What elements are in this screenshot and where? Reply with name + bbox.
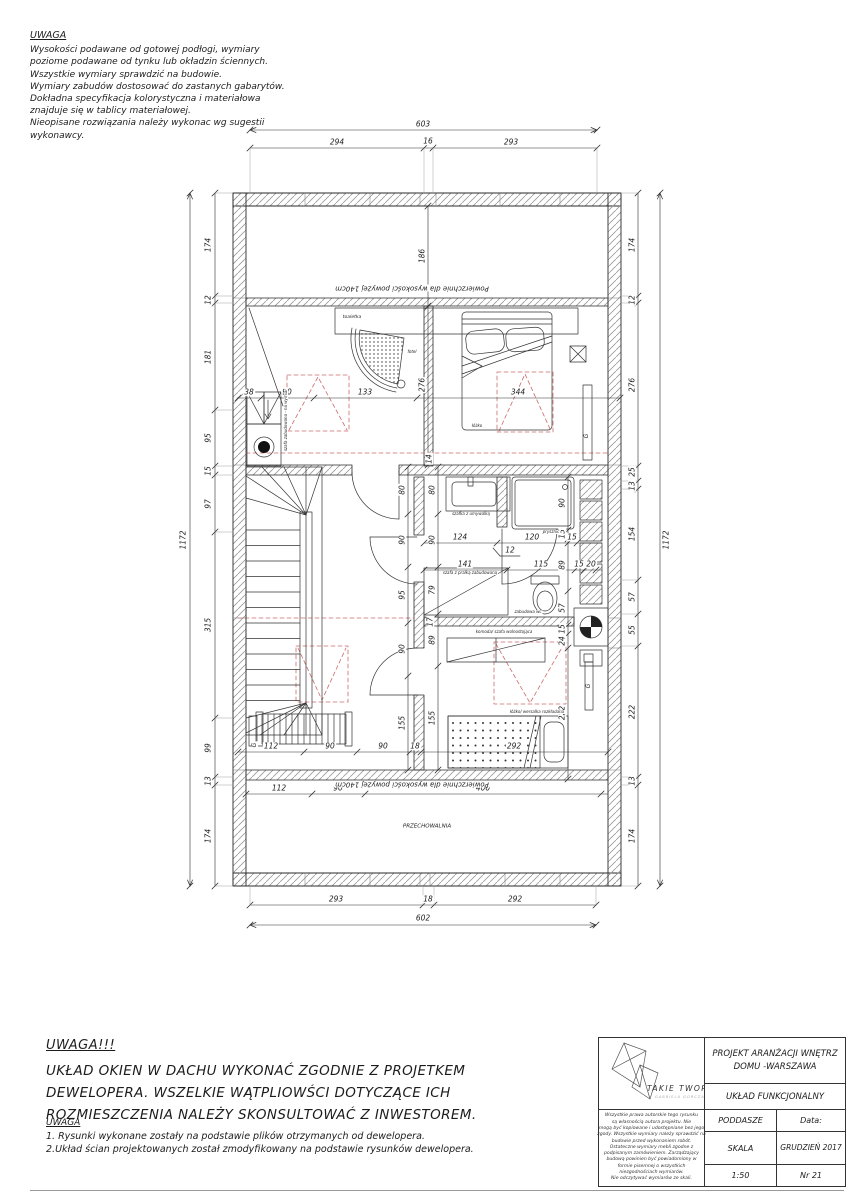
drawing-name: UKŁAD FUNKCJONALNY (705, 1083, 845, 1109)
title-block: TAKIE TWORY GABRIELA GORCZAK Wszystkie p… (598, 1037, 846, 1187)
note-line: Nie odczytywać wymiarów ze skali. (597, 1176, 705, 1182)
floor-plan-drawing (0, 0, 849, 1200)
developer-note-lines: 1. Rysunki wykonane zostały na podstawie… (46, 1130, 474, 1156)
note-line: poziome podawane od tynku lub okładzin ś… (30, 56, 285, 68)
developer-note: UWAGA 1. Rysunki wykonane zostały na pod… (46, 1118, 474, 1156)
radiator-bedroom (583, 385, 592, 460)
general-notes: UWAGA Wysokości podawane od gotowej podł… (30, 30, 285, 142)
disclaimer-lines: Wszystkie prawa autorskie tego rysunkusą… (597, 1113, 705, 1182)
copyright-disclaimer: Wszystkie prawa autorskie tego rysunkusą… (599, 1109, 705, 1186)
developer-note-title: UWAGA (46, 1118, 474, 1128)
note-line: Wszystkie wymiary sprawdzić na budowie. (30, 69, 285, 81)
scale-value: 1:50 (705, 1164, 776, 1186)
sheet-frame-line (30, 1190, 844, 1191)
note-line: UKŁAD OKIEN W DACHU WYKONAĆ ZGODNIE Z PR… (46, 1060, 477, 1082)
stage-value: PODDASZE (705, 1109, 776, 1131)
laundry-corner (247, 308, 283, 466)
note-line: budową powinien być powiadomiony w (597, 1157, 705, 1163)
roof-windows-note: UWAGA!!! UKŁAD OKIEN W DACHU WYKONAĆ ZGO… (46, 1038, 477, 1126)
notes-lines: Wysokości podawane od gotowej podłogi, w… (30, 44, 285, 142)
note-line: Wymiary zabudów dostosować do zastanych … (30, 81, 285, 93)
sofa-bed (448, 716, 568, 768)
note-line: wykonawcy. (30, 130, 285, 142)
outer-walls (233, 193, 621, 886)
built-in-shelves (580, 480, 602, 604)
bedroom-furniture (335, 308, 592, 460)
note-line: Dokładna specyfikacja kolorystyczna i ma… (30, 93, 285, 105)
project-title-line2: DOMU -WARSZAWA (712, 1061, 837, 1074)
note-line: 1. Rysunki wykonane zostały na podstawie… (46, 1130, 474, 1143)
brand-text: TAKIE TWORY (647, 1084, 704, 1093)
date-value: GRUDZIEŃ 2017 (776, 1131, 845, 1164)
note-line: zgody. Wszystkie wymiary należy sprawdzi… (597, 1132, 705, 1138)
wall-division-lines (233, 193, 621, 886)
note-line: znajduje się w tablicy materiałowej. (30, 105, 285, 117)
doors (352, 470, 557, 695)
bed (462, 312, 552, 430)
note-line: 2.Układ ścian projektowanych został zmod… (46, 1143, 474, 1156)
toilet (531, 576, 559, 584)
note-line: Nieopisane rozwiązania należy wykonac wg… (30, 117, 285, 129)
brand-subtext: GABRIELA GORCZAK (655, 1095, 704, 1099)
project-title-line1: PROJEKT ARANŻACJI WNĘTRZ (712, 1048, 837, 1061)
project-title: PROJEKT ARANŻACJI WNĘTRZ DOMU -WARSZAWA (705, 1038, 845, 1083)
note-line: Wszystkie prawa autorskie tego rysunku (597, 1113, 705, 1119)
roof-note-title: UWAGA!!! (46, 1038, 477, 1053)
drawing-sheet: 6032941629329318292602174121819515973159… (0, 0, 849, 1200)
note-line: DEWELOPERA. WSZELKIE WĄTPLIOWŚCI DOTYCZĄ… (46, 1082, 477, 1104)
logo-cell: TAKIE TWORY GABRIELA GORCZAK (599, 1038, 705, 1109)
radiator-guest-room (585, 662, 593, 710)
scale-label: SKALA (705, 1131, 776, 1164)
note-line: Wysokości podawane od gotowej podłogi, w… (30, 44, 285, 56)
radiator-stair-room (256, 712, 352, 746)
date-label: Data: (776, 1109, 845, 1131)
takie-twory-logo: TAKIE TWORY GABRIELA GORCZAK (600, 1039, 704, 1108)
dresser (447, 638, 545, 662)
roof-note-lines: UKŁAD OKIEN W DACHU WYKONAĆ ZGODNIE Z PR… (46, 1060, 477, 1126)
note-line: budowie przed wykonaniem robót. (597, 1139, 705, 1145)
notes-title: UWAGA (30, 30, 285, 42)
staircase (246, 467, 322, 735)
sheet-number: Nr 21 (776, 1164, 845, 1186)
